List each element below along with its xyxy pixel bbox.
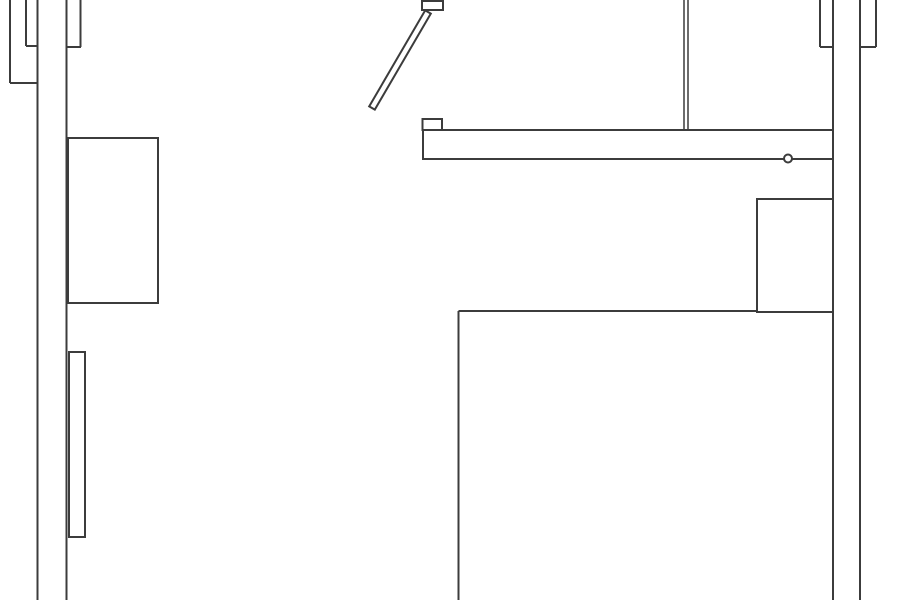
- door-leaf: [369, 10, 431, 109]
- lower-door-jamb: [423, 119, 443, 130]
- left-thin-fixture: [69, 352, 85, 537]
- left-cabinet: [68, 138, 158, 303]
- floor-plan-canvas: [0, 0, 900, 600]
- counter-bar: [423, 130, 833, 159]
- upper-door-jamb: [422, 1, 443, 10]
- floor-plan-page: [0, 0, 900, 600]
- right-cabinet: [757, 199, 833, 312]
- knob-circle: [784, 155, 792, 163]
